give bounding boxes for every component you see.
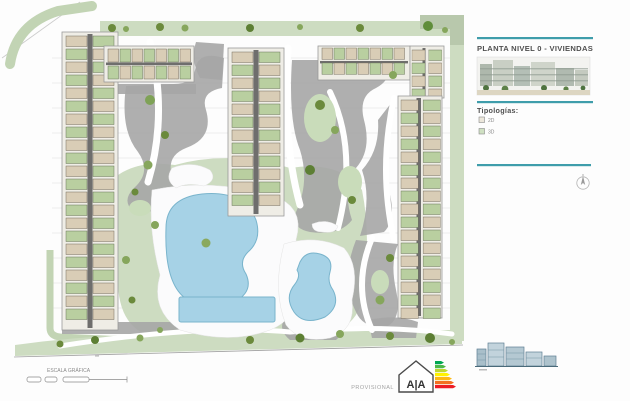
shade-structure <box>169 164 213 188</box>
north-arrow-icon <box>577 174 589 189</box>
building-northwest-bar <box>104 46 194 82</box>
aa-house-logo-icon: A|A <box>399 361 433 392</box>
energy-rating-icon <box>435 361 456 388</box>
legend-label-3d: 3D <box>488 130 495 136</box>
title-block-panel: PLANTA NIVEL 0 - VIVIENDAS Tipologías: 2… <box>477 37 593 189</box>
lap-pool <box>179 297 275 322</box>
legend-item-3d: 3D <box>479 129 495 136</box>
site-plan-drawing: PLANTA NIVEL 0 - VIVIENDAS Tipologías: 2… <box>0 0 630 401</box>
legend-item-2d: 2D <box>479 117 495 124</box>
scale-label: ESCALA GRÁFICA <box>47 367 91 374</box>
building-center-slab <box>228 48 284 216</box>
teal-rule-middle <box>477 101 593 103</box>
sheet-title: PLANTA NIVEL 0 - VIVIENDAS <box>477 44 593 53</box>
teal-rule-top <box>477 37 593 39</box>
legend-swatch-2d <box>479 117 485 123</box>
legend-title: Tipologías: <box>477 106 519 115</box>
legend-swatch-3d <box>479 129 485 135</box>
legend-label-2d: 2D <box>488 118 495 124</box>
teal-rule-bottom <box>477 164 591 166</box>
building-east-slab <box>398 46 444 319</box>
building-elevation-thumbnail <box>475 343 558 371</box>
project-render-thumbnail <box>477 57 590 95</box>
plan-sheet: PLANTA NIVEL 0 - VIVIENDAS Tipologías: 2… <box>0 0 630 401</box>
scale-bar-group: ESCALA GRÁFICA <box>27 355 127 383</box>
tree-icon <box>202 239 211 248</box>
logo-text: A|A <box>407 379 426 391</box>
provisional-watermark: PROVISIONAL <box>351 385 394 391</box>
